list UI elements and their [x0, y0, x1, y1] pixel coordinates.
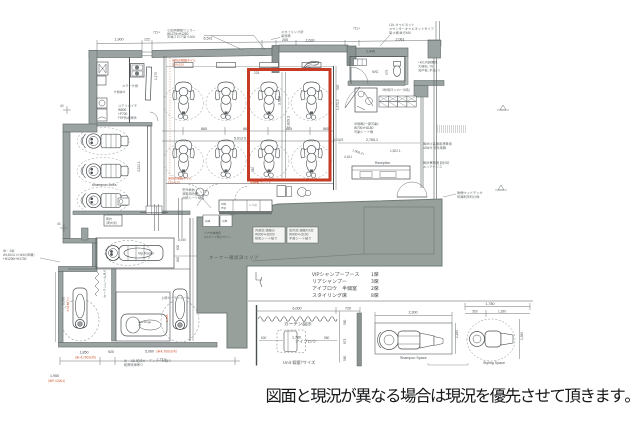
svg-text:1,950: 1,950 — [50, 374, 59, 378]
svg-text:3,620: 3,620 — [278, 96, 282, 105]
svg-text:340: 340 — [336, 84, 340, 90]
svg-text:1,280: 1,280 — [498, 310, 506, 314]
svg-text:600: 600 — [261, 336, 267, 340]
svg-text:975: 975 — [385, 69, 389, 75]
svg-text:8,940: 8,940 — [178, 238, 186, 242]
svg-text:2,300: 2,300 — [409, 311, 418, 315]
svg-text:720: 720 — [345, 307, 351, 311]
svg-text:122: 122 — [144, 38, 150, 42]
svg-text:110: 110 — [251, 167, 255, 172]
svg-text:920: 920 — [108, 350, 114, 354]
svg-text:580: 580 — [343, 355, 347, 361]
svg-text:2,829.3: 2,829.3 — [287, 116, 291, 128]
svg-text:1,445: 1,445 — [366, 50, 375, 54]
svg-text:Vip Room: Vip Room — [138, 252, 154, 256]
svg-text:120×120: 120×120 — [172, 63, 184, 67]
svg-text:Reception: Reception — [375, 161, 390, 165]
svg-text:6,000: 6,000 — [293, 307, 302, 311]
svg-text:40: 40 — [57, 222, 61, 226]
svg-text:5,060: 5,060 — [145, 350, 154, 354]
svg-text:1,175: 1,175 — [154, 72, 158, 80]
svg-text:W900×H2000: W900×H2000 — [255, 233, 275, 237]
svg-text:+P700: +P700 — [118, 112, 128, 116]
svg-text:2,765.1: 2,765.1 — [366, 138, 378, 142]
svg-text:W1275×H1250: W1275×H1250 — [167, 32, 189, 36]
svg-text:4,161: 4,161 — [344, 155, 352, 159]
svg-text:1,180: 1,180 — [455, 330, 459, 338]
svg-text:560: 560 — [472, 310, 478, 314]
svg-text:W700×H1180: W700×H1180 — [354, 126, 374, 130]
svg-text:1,900: 1,900 — [115, 38, 124, 42]
svg-text:(43)25: (43)25 — [334, 138, 343, 142]
svg-text:265: 265 — [282, 38, 288, 42]
svg-text:865: 865 — [201, 127, 207, 131]
svg-text:580: 580 — [343, 319, 347, 325]
svg-text:WC: WC — [372, 69, 379, 74]
svg-text:+H1200/+H1700: +H1200/+H1700 — [3, 257, 27, 261]
svg-text:3,222.1: 3,222.1 — [137, 161, 141, 172]
svg-text:1,502.1: 1,502.1 — [390, 149, 401, 153]
svg-text:Styling Space: Styling Space — [483, 361, 505, 365]
svg-text:1,380: 1,380 — [520, 332, 524, 340]
svg-text:1,780: 1,780 — [486, 302, 495, 306]
svg-text:1,780: 1,780 — [292, 336, 301, 340]
svg-text:865: 865 — [323, 127, 329, 131]
svg-text:2,630: 2,630 — [306, 39, 315, 43]
svg-text:711+: 711+ — [353, 27, 360, 31]
svg-text:2,061: 2,061 — [396, 38, 405, 42]
svg-text:120×120: 120×120 — [168, 181, 180, 185]
svg-text:225: 225 — [254, 71, 260, 75]
svg-text:5,750: 5,750 — [62, 297, 66, 305]
svg-text:6,591: 6,591 — [204, 37, 213, 41]
svg-text:1,370.5: 1,370.5 — [336, 99, 340, 110]
svg-text:40: 40 — [60, 104, 64, 108]
svg-text:Shampoo Space: Shampoo Space — [400, 356, 427, 360]
svg-text:unit fringe: unit fringe — [138, 320, 152, 324]
svg-text:840: 840 — [176, 256, 180, 262]
svg-text:600: 600 — [176, 244, 180, 250]
svg-text:721+: 721+ — [153, 31, 160, 35]
svg-text:5,913.5: 5,913.5 — [234, 137, 246, 141]
svg-text:1,495: 1,495 — [165, 314, 169, 322]
svg-text:W900×H1190: W900×H1190 — [289, 233, 309, 237]
svg-text:873: 873 — [343, 338, 347, 344]
svg-text:1,850: 1,850 — [80, 351, 89, 355]
svg-text:580: 580 — [324, 336, 330, 340]
svg-text:shampoo Area: shampoo Area — [92, 183, 117, 187]
